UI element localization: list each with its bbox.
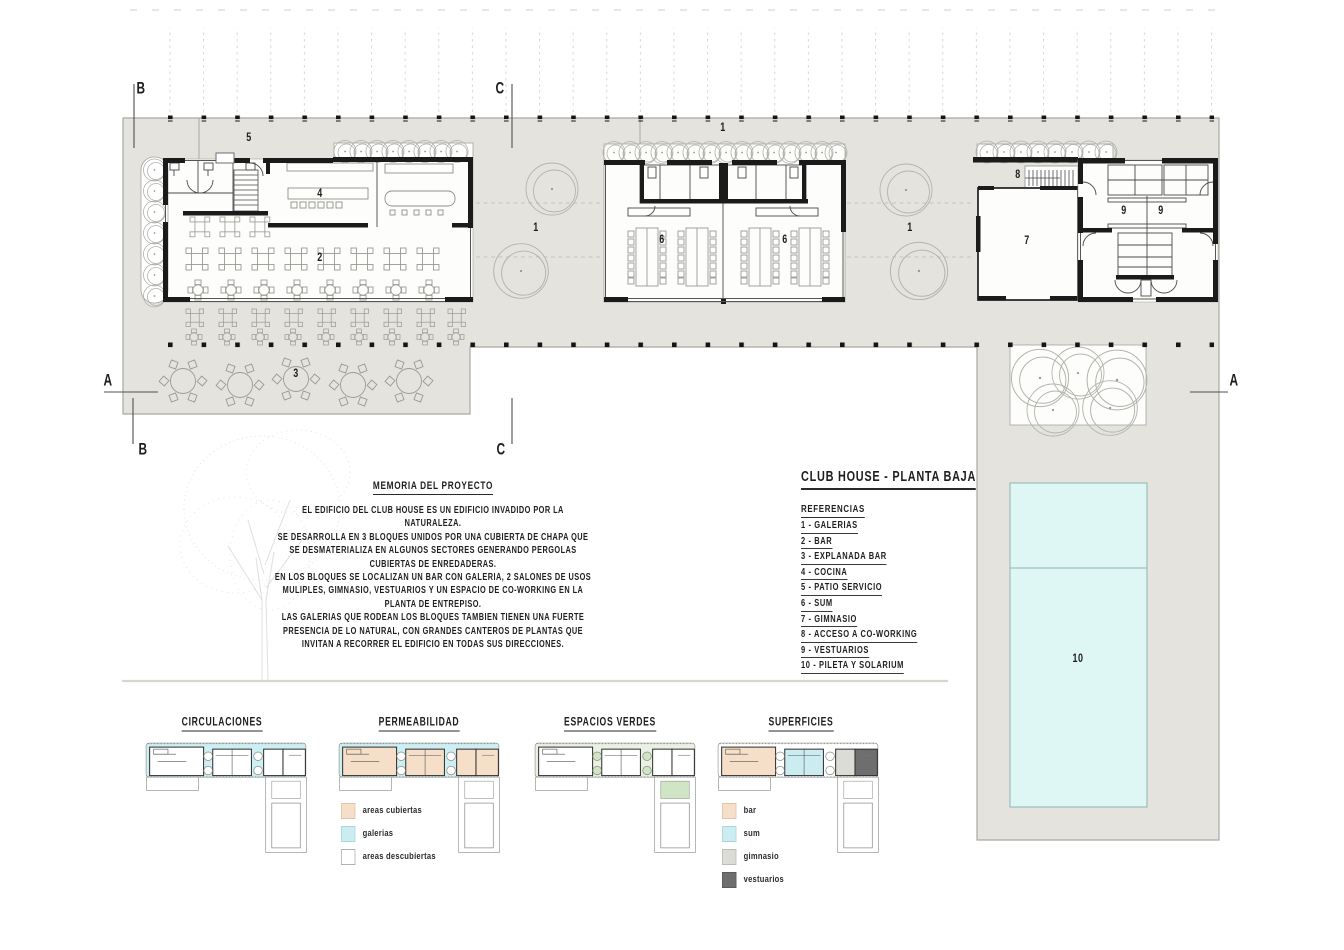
diagram-title-superficies: SUPERFICIES bbox=[769, 717, 834, 732]
pool bbox=[1010, 483, 1147, 807]
referencias-panel: CLUB HOUSE - PLANTA BAJA REFERENCIAS 1 -… bbox=[801, 469, 976, 674]
swatch-gimnasio bbox=[722, 849, 736, 865]
room-label-pileta: 10 bbox=[1073, 653, 1084, 665]
memoria-heading: MEMORIA DEL PROYECTO bbox=[373, 480, 493, 495]
legend-row: areas cubiertas bbox=[341, 802, 436, 819]
referencia-item: 6 - SUM bbox=[801, 599, 833, 612]
memoria-body: EL EDIFICIO DEL CLUB HOUSE ES UN EDIFICI… bbox=[268, 504, 598, 651]
room-label-vestuario-2: 9 bbox=[1158, 205, 1163, 217]
diagram-title-espacios-verdes: ESPACIOS VERDES bbox=[564, 717, 656, 732]
page-title: CLUB HOUSE - PLANTA BAJA bbox=[801, 469, 976, 490]
referencia-item: 5 - PATIO SERVICIO bbox=[801, 583, 882, 596]
referencia-item: 2 - BAR bbox=[801, 537, 832, 550]
referencia-item: 8 - ACCESO A CO-WORKING bbox=[801, 630, 917, 643]
swatch-areas-cubiertas bbox=[341, 803, 355, 819]
swatch-bar bbox=[722, 803, 736, 819]
referencia-item: 3 - EXPLANADA BAR bbox=[801, 552, 887, 565]
legend-row: bar bbox=[722, 802, 784, 819]
bar-entry-vestibule bbox=[216, 153, 234, 163]
room-label-galeria-top: 1 bbox=[720, 122, 725, 134]
referencia-item: 7 - GIMNASIO bbox=[801, 615, 857, 628]
swatch-sum bbox=[722, 826, 736, 842]
section-marker-b-top: B bbox=[137, 80, 146, 99]
section-marker-a-right: A bbox=[1230, 372, 1239, 391]
diagram-title-circulaciones: CIRCULACIONES bbox=[182, 717, 263, 732]
diagram-title-permeabilidad: PERMEABILIDAD bbox=[379, 717, 460, 732]
sum-block bbox=[603, 142, 847, 305]
section-marker-c-bottom: C bbox=[497, 441, 506, 460]
sheet: B C A A B C 5 4 2 3 1 1 1 6 6 7 8 9 9 10… bbox=[0, 0, 1344, 950]
pergola-grid-lines bbox=[163, 28, 1215, 118]
column-posts-bottom bbox=[164, 343, 1214, 349]
swatch-galerias bbox=[341, 826, 355, 842]
solarium-trees-box bbox=[1010, 345, 1147, 436]
referencia-item: 4 - COCINA bbox=[801, 568, 847, 581]
legend-row: gimnasio bbox=[722, 848, 784, 865]
legend-row: vestuarios bbox=[722, 871, 784, 888]
room-label-cocina: 4 bbox=[317, 188, 322, 200]
room-label-coworking: 8 bbox=[1015, 169, 1020, 181]
referencia-item: 9 - VESTUARIOS bbox=[801, 646, 869, 659]
section-marker-c-top: C bbox=[496, 80, 505, 99]
room-label-gimnasio: 7 bbox=[1024, 235, 1029, 247]
diagram-circulaciones-map bbox=[145, 741, 309, 855]
room-label-vestuario-1: 9 bbox=[1121, 205, 1126, 217]
swatch-vestuarios bbox=[722, 872, 736, 888]
section-marker-a-left: A bbox=[104, 372, 113, 391]
swatch-areas-descubiertas bbox=[341, 849, 355, 865]
referencia-item: 10 - PILETA Y SOLARIUM bbox=[801, 661, 904, 674]
referencias-heading: REFERENCIAS bbox=[801, 503, 865, 518]
diagram-espacios-verdes-map bbox=[534, 741, 698, 855]
room-label-sum-1: 6 bbox=[659, 234, 664, 246]
room-label-sum-2: 6 bbox=[782, 234, 787, 246]
room-label-galeria-right: 1 bbox=[907, 222, 912, 234]
referencia-item: 1 - GALERIAS bbox=[801, 521, 858, 534]
room-label-bar: 2 bbox=[317, 252, 322, 264]
bar-block bbox=[141, 141, 473, 308]
legend-row: galerias bbox=[341, 825, 436, 842]
room-label-explanada: 3 bbox=[293, 368, 298, 380]
memoria-block: MEMORIA DEL PROYECTO EL EDIFICIO DEL CLU… bbox=[268, 476, 598, 651]
permeabilidad-legend: areas cubiertas galerias areas descubier… bbox=[341, 802, 436, 871]
legend-row: sum bbox=[722, 825, 784, 842]
superficies-legend: bar sum gimnasio vestuarios bbox=[722, 802, 784, 894]
legend-row: areas descubiertas bbox=[341, 848, 436, 865]
section-marker-b-bottom: B bbox=[139, 441, 148, 460]
column-posts-top bbox=[164, 116, 1214, 122]
room-label-patio-servicio: 5 bbox=[246, 132, 251, 144]
room-label-galeria-left: 1 bbox=[533, 222, 538, 234]
